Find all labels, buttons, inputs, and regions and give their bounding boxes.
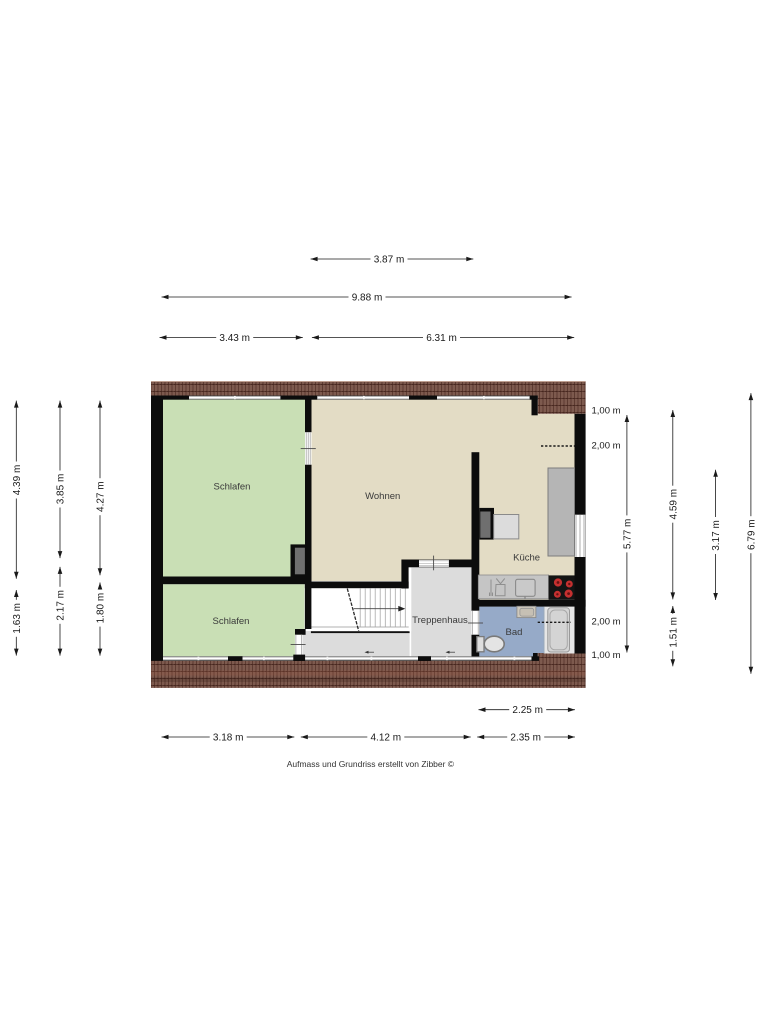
svg-text:2.17 m: 2.17 m (56, 590, 67, 621)
svg-text:2.35 m: 2.35 m (510, 733, 541, 744)
svg-text:6.31 m: 6.31 m (426, 333, 457, 344)
svg-text:4.59 m: 4.59 m (668, 489, 679, 520)
svg-text:Bad: Bad (506, 627, 523, 638)
svg-text:1.80 m: 1.80 m (96, 593, 107, 624)
svg-text:1,00 m: 1,00 m (592, 406, 621, 417)
svg-text:3.85 m: 3.85 m (56, 474, 67, 505)
svg-text:3.18 m: 3.18 m (213, 733, 244, 744)
svg-text:1,00 m: 1,00 m (592, 650, 621, 661)
svg-text:9.88 m: 9.88 m (352, 293, 383, 304)
svg-text:2.25 m: 2.25 m (512, 705, 543, 716)
svg-text:4.27 m: 4.27 m (96, 481, 107, 512)
svg-text:Schlafen: Schlafen (213, 616, 250, 627)
svg-text:Küche: Küche (513, 552, 540, 563)
svg-text:5.77 m: 5.77 m (622, 519, 633, 550)
svg-text:Aufmass und Grundriss erstellt: Aufmass und Grundriss erstellt von Zibbe… (287, 759, 455, 769)
svg-text:6.79 m: 6.79 m (746, 519, 757, 550)
svg-text:3.17 m: 3.17 m (711, 520, 722, 551)
svg-text:3.43 m: 3.43 m (219, 333, 250, 344)
svg-text:Treppenhaus: Treppenhaus (412, 615, 468, 626)
svg-text:Schlafen: Schlafen (214, 481, 251, 492)
svg-text:4.39 m: 4.39 m (12, 465, 23, 496)
svg-text:Wohnen: Wohnen (365, 491, 400, 502)
svg-text:1.51 m: 1.51 m (668, 617, 679, 648)
svg-text:1.63 m: 1.63 m (12, 603, 23, 634)
svg-text:2,00 m: 2,00 m (592, 441, 621, 452)
svg-text:4.12 m: 4.12 m (371, 733, 402, 744)
svg-text:3.87 m: 3.87 m (374, 255, 405, 266)
svg-text:2,00 m: 2,00 m (592, 617, 621, 628)
